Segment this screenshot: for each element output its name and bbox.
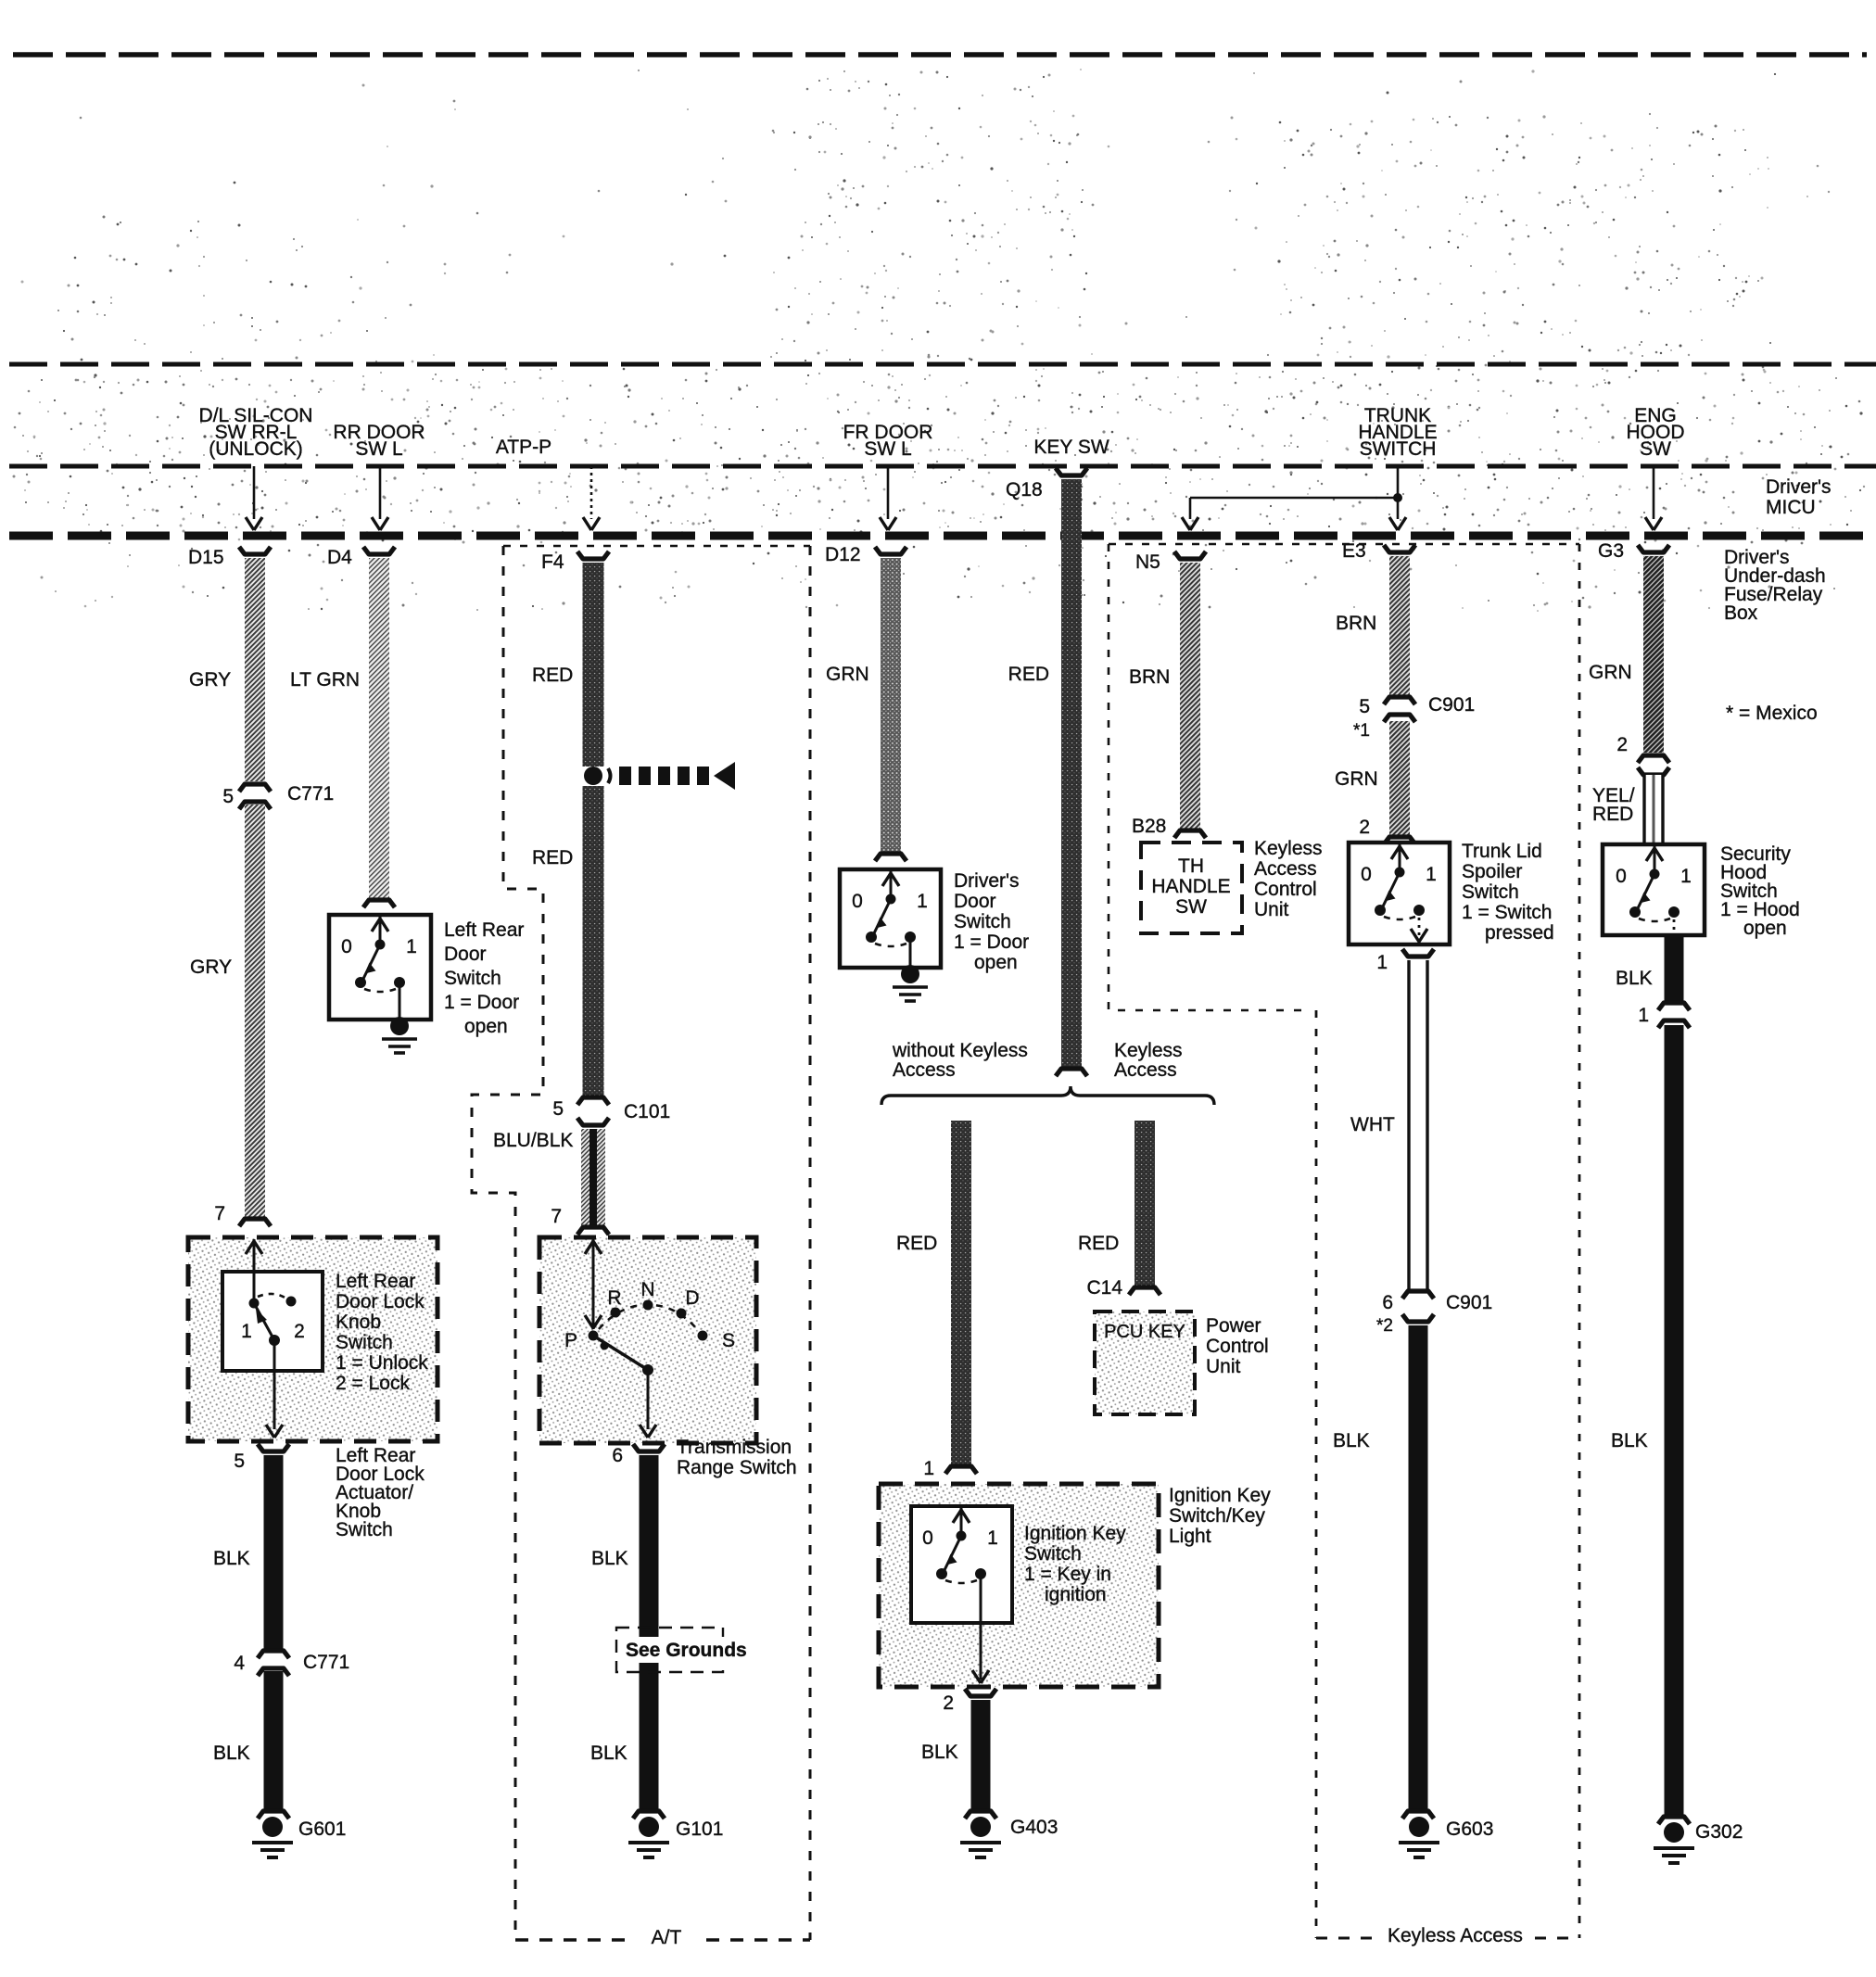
svg-text:ATP-P: ATP-P (496, 437, 551, 458)
svg-text:G403: G403 (1010, 1817, 1058, 1838)
svg-text:Switch: Switch (444, 968, 501, 989)
svg-text:SWITCH: SWITCH (1360, 438, 1437, 460)
svg-text:SW L: SW L (355, 438, 402, 460)
svg-text:1: 1 (1426, 864, 1437, 885)
svg-text:Access: Access (1254, 858, 1317, 880)
svg-text:GRN: GRN (826, 664, 869, 685)
svg-text:BLK: BLK (1611, 1430, 1648, 1451)
svg-text:without Keyless: without Keyless (892, 1040, 1028, 1061)
svg-text:Door: Door (954, 891, 996, 912)
svg-text:P: P (564, 1330, 577, 1351)
svg-text:1 = Door: 1 = Door (954, 931, 1029, 953)
svg-text:KEY SW: KEY SW (1033, 437, 1109, 458)
svg-text:Door Lock: Door Lock (336, 1291, 425, 1312)
svg-text:1 = Switch: 1 = Switch (1462, 902, 1552, 923)
svg-text:N: N (640, 1279, 654, 1300)
svg-text:1: 1 (917, 891, 928, 912)
svg-text:G101: G101 (676, 1819, 723, 1840)
svg-text:5: 5 (234, 1451, 245, 1472)
svg-text:7: 7 (214, 1203, 225, 1224)
svg-text:LT GRN: LT GRN (290, 669, 360, 691)
svg-text:Light: Light (1169, 1526, 1211, 1547)
svg-text:0: 0 (852, 891, 863, 912)
svg-text:A/T: A/T (652, 1927, 682, 1948)
svg-text:open: open (1743, 918, 1787, 939)
svg-text:Switch: Switch (336, 1332, 393, 1353)
svg-text:D12: D12 (825, 544, 861, 565)
svg-text:Left Rear: Left Rear (444, 919, 524, 941)
svg-text:TH: TH (1178, 855, 1204, 877)
svg-text:2 = Lock: 2 = Lock (336, 1373, 410, 1394)
svg-text:BLK: BLK (1616, 968, 1653, 989)
svg-text:Access: Access (1114, 1059, 1177, 1081)
svg-text:G3: G3 (1598, 540, 1624, 562)
svg-text:1 = Unlock: 1 = Unlock (336, 1352, 428, 1374)
svg-text:See Grounds: See Grounds (626, 1640, 747, 1661)
svg-text:Door: Door (444, 944, 487, 965)
svg-text:Unit: Unit (1206, 1356, 1241, 1377)
svg-text:Trunk Lid: Trunk Lid (1462, 841, 1542, 862)
svg-text:WHT: WHT (1350, 1114, 1395, 1135)
svg-text:2: 2 (1616, 734, 1628, 755)
svg-text:BLK: BLK (213, 1743, 250, 1764)
svg-text:Range Switch: Range Switch (677, 1457, 797, 1478)
svg-text:0: 0 (1361, 864, 1372, 885)
svg-text:C14: C14 (1086, 1277, 1122, 1299)
svg-text:1: 1 (1680, 866, 1692, 887)
svg-text:RED: RED (1592, 804, 1633, 825)
svg-text:Driver's: Driver's (954, 870, 1020, 892)
svg-text:G603: G603 (1446, 1819, 1493, 1840)
svg-text:*2: *2 (1376, 1316, 1393, 1336)
svg-text:PCU KEY: PCU KEY (1104, 1322, 1185, 1342)
svg-text:1: 1 (406, 936, 417, 957)
svg-text:7: 7 (551, 1206, 562, 1227)
svg-text:F4: F4 (541, 551, 564, 573)
svg-text:R: R (607, 1287, 621, 1309)
svg-text:N5: N5 (1135, 551, 1160, 573)
svg-text:Box: Box (1724, 602, 1758, 624)
svg-text:* = Mexico: * = Mexico (1726, 703, 1818, 724)
svg-text:2: 2 (943, 1692, 954, 1714)
svg-text:D: D (685, 1287, 699, 1309)
svg-text:G601: G601 (298, 1819, 346, 1840)
svg-text:B28: B28 (1132, 816, 1166, 837)
svg-text:6: 6 (612, 1445, 623, 1466)
svg-text:1: 1 (1376, 952, 1388, 973)
svg-text:Keyless: Keyless (1254, 838, 1323, 859)
svg-text:6: 6 (1382, 1292, 1393, 1313)
svg-text:1: 1 (987, 1527, 998, 1549)
svg-text:Knob: Knob (336, 1312, 381, 1333)
svg-text:C901: C901 (1446, 1292, 1492, 1313)
svg-text:BRN: BRN (1336, 613, 1376, 634)
svg-text:Power: Power (1206, 1315, 1261, 1337)
svg-text:Spoiler: Spoiler (1462, 861, 1522, 882)
svg-text:Switch: Switch (1462, 881, 1519, 903)
svg-text:1: 1 (923, 1458, 934, 1479)
svg-text:1: 1 (1638, 1005, 1649, 1026)
svg-text:Ignition Key: Ignition Key (1169, 1485, 1271, 1506)
svg-text:5: 5 (552, 1098, 564, 1120)
svg-text:1: 1 (241, 1321, 252, 1342)
svg-text:0: 0 (922, 1527, 933, 1549)
svg-text:Access: Access (893, 1059, 956, 1081)
svg-text:Ignition Key: Ignition Key (1024, 1523, 1126, 1544)
svg-text:D4: D4 (327, 547, 352, 568)
svg-text:Switch: Switch (954, 911, 1011, 932)
svg-text:RED: RED (532, 665, 573, 686)
svg-text:open: open (464, 1016, 508, 1037)
svg-text:Keyless Access: Keyless Access (1388, 1925, 1523, 1946)
svg-text:Switch: Switch (336, 1519, 393, 1540)
svg-text:1 = Door: 1 = Door (444, 992, 519, 1013)
svg-text:(UNLOCK): (UNLOCK) (209, 438, 303, 460)
svg-text:4: 4 (234, 1653, 245, 1674)
svg-text:C101: C101 (624, 1101, 670, 1122)
svg-text:ignition: ignition (1045, 1584, 1107, 1605)
svg-text:SW L: SW L (864, 438, 911, 460)
svg-text:G302: G302 (1695, 1821, 1743, 1843)
svg-text:RED: RED (896, 1233, 937, 1254)
svg-text:BLU/BLK: BLU/BLK (493, 1130, 573, 1151)
svg-text:BLK: BLK (921, 1742, 958, 1763)
svg-text:GRY: GRY (189, 669, 231, 691)
svg-text:RED: RED (1078, 1233, 1119, 1254)
svg-text:*1: *1 (1353, 721, 1370, 741)
svg-text:5: 5 (1359, 696, 1370, 717)
svg-text:C771: C771 (303, 1652, 349, 1673)
svg-text:Control: Control (1254, 879, 1317, 900)
svg-text:BRN: BRN (1129, 666, 1170, 688)
svg-text:C771: C771 (287, 783, 334, 805)
svg-text:MICU: MICU (1766, 497, 1816, 518)
svg-text:D15: D15 (188, 547, 224, 568)
svg-text:GRN: GRN (1335, 768, 1378, 790)
svg-text:BLK: BLK (213, 1548, 250, 1569)
svg-text:Keyless: Keyless (1114, 1040, 1183, 1061)
svg-text:C901: C901 (1428, 694, 1475, 716)
svg-text:SW: SW (1640, 438, 1671, 460)
svg-text:Left Rear: Left Rear (336, 1271, 415, 1292)
svg-text:Driver's: Driver's (1766, 476, 1832, 498)
svg-text:Transmission: Transmission (677, 1437, 792, 1458)
svg-text:RED: RED (532, 847, 573, 868)
svg-text:Switch/Key: Switch/Key (1169, 1505, 1265, 1527)
svg-text:GRY: GRY (190, 957, 232, 978)
svg-text:RED: RED (1008, 664, 1049, 685)
svg-text:open: open (974, 952, 1018, 973)
svg-text:5: 5 (222, 786, 234, 807)
svg-text:Unit: Unit (1254, 899, 1289, 920)
svg-text:SW: SW (1175, 896, 1207, 918)
svg-text:BLK: BLK (590, 1743, 627, 1764)
svg-text:0: 0 (341, 936, 352, 957)
svg-text:2: 2 (294, 1321, 305, 1342)
svg-text:Switch: Switch (1024, 1543, 1082, 1565)
svg-text:Control: Control (1206, 1336, 1269, 1357)
svg-text:BLK: BLK (1333, 1430, 1370, 1451)
svg-text:S: S (722, 1330, 735, 1351)
svg-text:2: 2 (1359, 817, 1370, 838)
svg-text:E3: E3 (1342, 540, 1366, 562)
svg-text:pressed: pressed (1485, 922, 1554, 944)
svg-text:0: 0 (1616, 866, 1627, 887)
svg-text:1 = Key in: 1 = Key in (1024, 1564, 1111, 1585)
svg-text:BLK: BLK (591, 1548, 628, 1569)
svg-text:HANDLE: HANDLE (1151, 876, 1230, 897)
svg-text:Q18: Q18 (1006, 479, 1043, 501)
svg-text:GRN: GRN (1589, 662, 1632, 683)
